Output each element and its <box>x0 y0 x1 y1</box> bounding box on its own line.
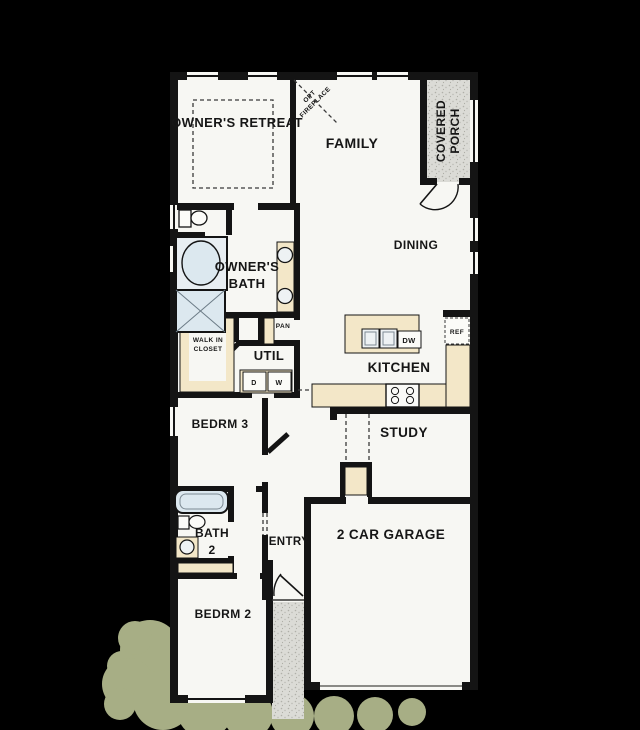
label-dishwasher: DW <box>402 336 416 345</box>
window <box>170 205 178 229</box>
room-label-garage: 2 CAR GARAGE <box>337 527 445 542</box>
room-label-family: FAMILY <box>326 135 379 151</box>
window <box>170 407 178 436</box>
coat-closet-shelf <box>345 467 367 495</box>
room-label-kitchen: KITCHEN <box>368 360 431 375</box>
room-label-walkin-closet-2: CLOSET <box>194 346 223 353</box>
room-label-covered-porch: COVERED PORCH <box>434 100 462 162</box>
room-label-study: STUDY <box>380 425 428 440</box>
room-label-owners-retreat: OWNER'S RETREAT <box>171 115 303 130</box>
label-pantry: PAN <box>276 323 290 330</box>
svg-text:COVERED: COVERED <box>434 100 448 162</box>
room-label-bedroom2: BEDRM 2 <box>195 607 252 621</box>
room-label-owners-bath-1: OWNER'S <box>215 259 279 274</box>
room-label-util: UTIL <box>254 348 284 363</box>
pantry-shelf <box>264 318 274 344</box>
room-label-bedroom3: BEDRM 3 <box>192 417 249 431</box>
shower <box>176 290 225 332</box>
svg-text:PORCH: PORCH <box>448 108 462 153</box>
window <box>377 72 408 80</box>
room-label-bath2-2: 2 <box>208 543 215 557</box>
kitchen-counter-right <box>446 345 470 407</box>
room-label-owners-bath-2: BATH <box>229 276 266 291</box>
room-label-bath2-1: BATH <box>195 526 229 540</box>
room-label-walkin-closet-1: WALK IN <box>193 337 223 344</box>
window <box>337 72 372 80</box>
label-dryer: D <box>251 380 256 387</box>
window <box>248 72 277 80</box>
bath2-tub <box>175 490 228 513</box>
porch-opening <box>470 100 478 162</box>
linen-shelf <box>178 563 233 573</box>
range-stove <box>386 384 419 407</box>
label-ref: REF <box>450 329 464 336</box>
label-washer: W <box>275 380 282 387</box>
bath2-sink <box>176 537 198 558</box>
room-label-dining: DINING <box>394 238 438 252</box>
window <box>187 72 218 80</box>
island-sink <box>362 329 397 348</box>
floor-plan: OWNER'S RETREAT OPT FIREPLACE FAMILY COV… <box>0 0 640 730</box>
window <box>470 218 478 241</box>
room-label-entry: ENTRY <box>269 536 310 548</box>
window <box>470 252 478 274</box>
garage-door-line <box>320 685 462 687</box>
front-porch-area <box>272 602 304 719</box>
